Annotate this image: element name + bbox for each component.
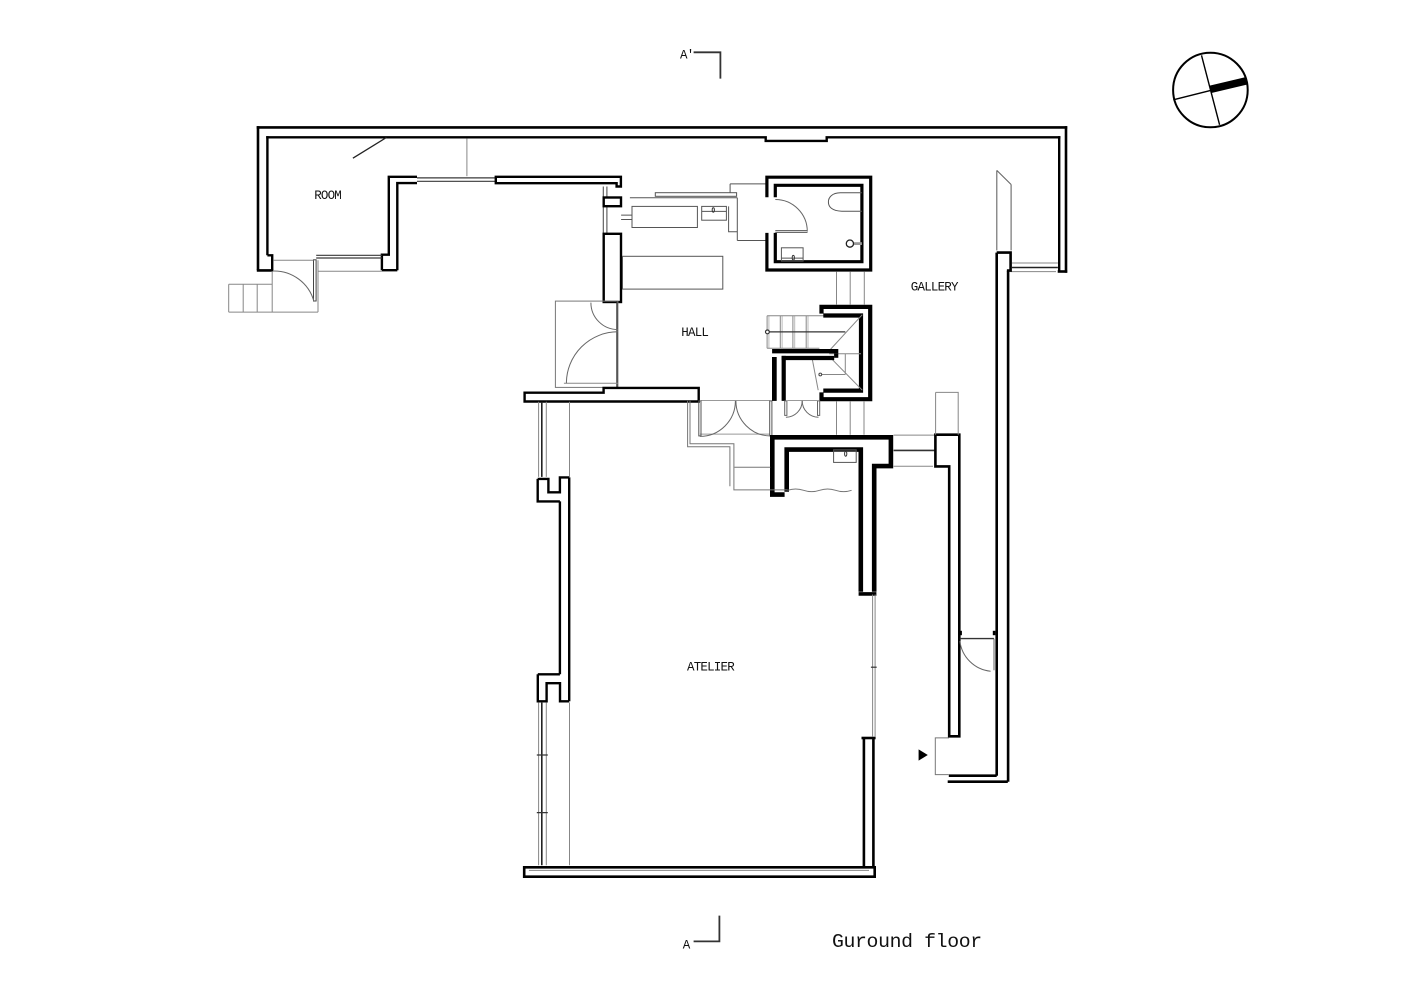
svg-text:Guround floor: Guround floor bbox=[832, 931, 982, 953]
svg-text:ROOM: ROOM bbox=[314, 189, 341, 203]
svg-text:HALL: HALL bbox=[681, 326, 708, 340]
svg-text:ATELIER: ATELIER bbox=[687, 660, 735, 674]
svg-text:A': A' bbox=[680, 48, 693, 62]
svg-text:GALLERY: GALLERY bbox=[911, 280, 959, 294]
